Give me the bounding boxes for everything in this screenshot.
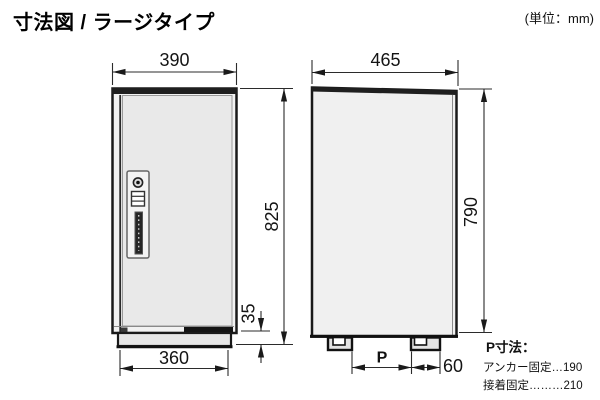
front-door-bottom-trim — [184, 327, 233, 333]
control-panel — [127, 171, 149, 258]
dim-label-front-height: 825 — [262, 201, 282, 231]
p-note-heading: P寸法： — [486, 336, 583, 356]
p-dimension-note: P寸法： アンカー固定…190 接着固定………210 — [483, 336, 583, 393]
front-base-plinth — [118, 333, 231, 346]
dim-label-side-height: 790 — [461, 197, 481, 227]
dimension-diagram-page: 寸法図 / ラージタイプ (単位：mm) — [0, 0, 600, 400]
p-note-anchor-line: アンカー固定…190 — [483, 359, 583, 375]
dim-foot-offset — [412, 352, 441, 375]
front-top-cap — [112, 88, 238, 94]
dim-label-foot-pitch: P — [377, 350, 388, 367]
side-front-foot-slot — [333, 338, 345, 346]
lock-icon-center — [136, 181, 140, 185]
front-view: 390 825 35 360 — [112, 50, 294, 376]
dim-label-front-bottom-width: 360 — [159, 348, 189, 368]
dim-label-base-height: 35 — [239, 303, 259, 323]
side-view: 465 790 P 60 — [310, 50, 492, 376]
dim-label-foot-offset: 60 — [443, 356, 463, 376]
side-cabinet-body — [312, 88, 457, 337]
dim-label-side-depth: 465 — [370, 50, 400, 70]
p-note-adhesive-line: 接着固定………210 — [483, 377, 583, 393]
front-door-bottom-left-trim — [121, 328, 128, 333]
dim-label-front-width: 390 — [159, 50, 189, 70]
call-button-icon — [132, 192, 145, 207]
side-rear-foot-slot — [415, 338, 427, 346]
